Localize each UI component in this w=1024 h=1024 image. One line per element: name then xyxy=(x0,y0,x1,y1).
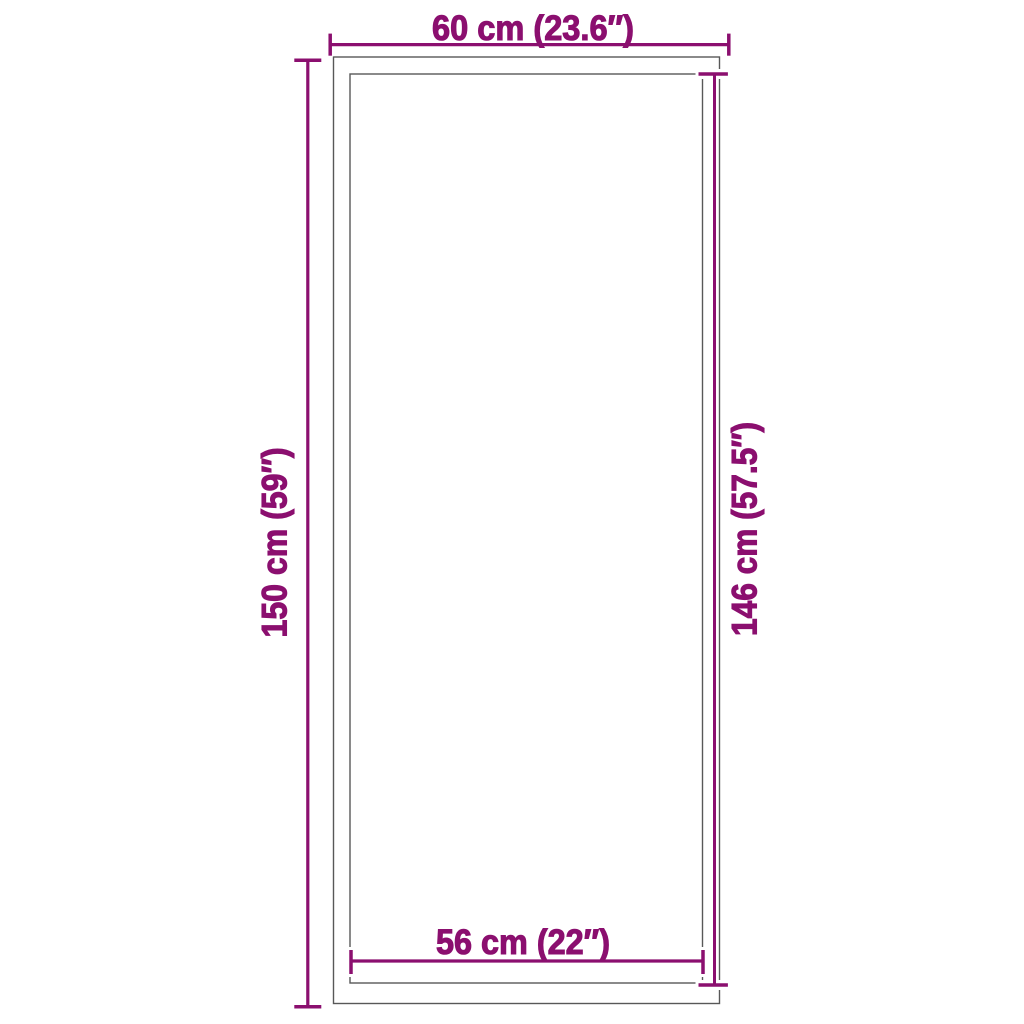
svg-text:56 cm (22″): 56 cm (22″) xyxy=(436,923,610,962)
svg-text:150 cm (59″): 150 cm (59″) xyxy=(256,448,295,638)
svg-text:60 cm (23.6″): 60 cm (23.6″) xyxy=(432,9,634,48)
svg-text:146 cm (57.5″): 146 cm (57.5″) xyxy=(726,422,765,636)
